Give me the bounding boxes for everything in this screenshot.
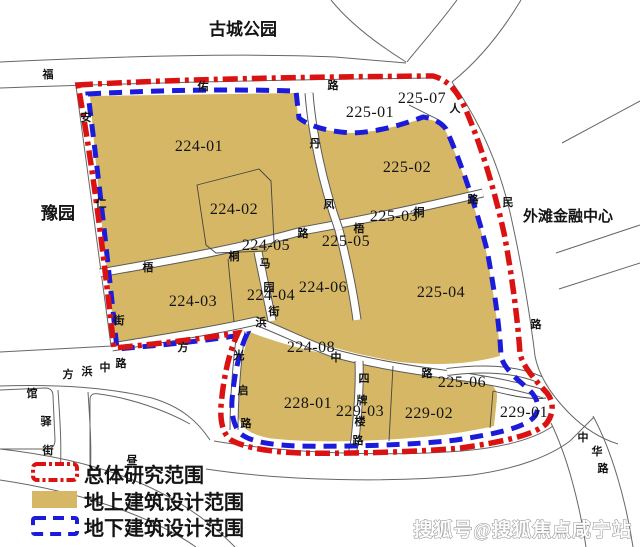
legend-swatch-above-ground — [32, 491, 77, 508]
street-label-方浜中路: 方 — [178, 340, 189, 354]
street-label-馆驿街: 驿 — [41, 415, 53, 428]
street-label-中华路: 华 — [592, 444, 603, 458]
parcel-label-224-01: 224-01 — [175, 138, 223, 155]
street-label-丹凤路: 丹 — [310, 137, 321, 150]
parcel-label-225-07: 225-07 — [398, 90, 446, 107]
legend-swatch-underground — [33, 518, 77, 534]
parcel-label-224-08: 224-08 — [287, 339, 335, 356]
street-label-馆驿街: 馆 — [27, 386, 38, 400]
street-label-中华路: 中 — [578, 430, 589, 444]
street-label-丹凤路: 凤 — [324, 198, 335, 211]
street-label-人民路: 路 — [531, 317, 543, 331]
street-label-梧桐路: 梧 — [354, 221, 365, 235]
street-label-光启路: 路 — [241, 416, 253, 430]
street-label-马园街: 园 — [264, 281, 275, 294]
parcel-label-229-01: 229-01 — [500, 404, 548, 421]
street-label-马园街: 马 — [260, 257, 271, 270]
place-label-古城公园: 古城公园 — [209, 19, 277, 39]
street-label-福佑路: 佑 — [197, 79, 209, 93]
legend-label-study-boundary: 总体研究范围 — [84, 463, 204, 487]
street-label-福佑路: 路 — [328, 78, 340, 92]
street-label-梧桐路: 路 — [298, 226, 310, 240]
street-label-光启路: 启 — [238, 383, 249, 397]
parcel-label-224-02: 224-02 — [210, 201, 258, 218]
street-label-福佑路: 福 — [42, 67, 54, 81]
street-label-光启路: 光 — [233, 348, 245, 362]
street-label-梧桐路: 桐 — [229, 249, 240, 263]
street-label-安仁街: 街 — [113, 313, 125, 327]
parcel-label-225-01: 225-01 — [346, 104, 394, 121]
parcel-label-225-05: 225-05 — [322, 233, 370, 250]
street-label-馆驿街: 街 — [42, 443, 54, 457]
street-label-中华路: 路 — [598, 461, 610, 475]
street-label-四牌楼路: 牌 — [357, 393, 368, 407]
place-label-外滩金融中心: 外滩金融中心 — [522, 207, 613, 225]
planning-map: 224-01224-02224-05224-03224-04224-06224-… — [0, 0, 640, 547]
place-label-豫园: 豫园 — [41, 203, 75, 223]
street-label-梧桐路: 路 — [468, 192, 480, 206]
street-label-梧桐路: 桐 — [414, 205, 425, 219]
parcel-label-224-05: 224-05 — [242, 237, 290, 254]
street-label-方浜中路: 路 — [422, 366, 434, 380]
street-label-方浜中路: 浜 — [256, 315, 267, 329]
street-label-四牌楼路: 路 — [353, 433, 365, 447]
parcel-label-224-06: 224-06 — [299, 279, 347, 296]
street-label-方浜中路: 浜 — [82, 364, 93, 378]
street-label-安仁街: 仁 — [96, 196, 107, 210]
street-label-人民路: 人 — [450, 101, 462, 115]
parcel-label-225-06: 225-06 — [438, 374, 486, 391]
street-label-梧桐路: 梧 — [143, 260, 154, 274]
street-label-方浜中路: 中 — [331, 350, 342, 364]
street-label-方浜中路: 路 — [116, 356, 128, 370]
parcel-label-228-01: 228-01 — [284, 395, 332, 412]
planning-map-page: 224-01224-02224-05224-03224-04224-06224-… — [0, 0, 640, 547]
parcel-label-224-03: 224-03 — [169, 293, 217, 310]
street-label-安仁街: 安 — [81, 110, 92, 124]
street-label-方浜中路: 中 — [100, 360, 111, 374]
legend-label-above-ground: 地上建筑设计范围 — [84, 490, 244, 514]
legend-swatch-study-boundary — [33, 464, 77, 480]
parcel-label-225-03: 225-03 — [370, 208, 418, 225]
street-label-四牌楼路: 楼 — [355, 414, 366, 428]
parcel-label-229-02: 229-02 — [405, 405, 453, 422]
legend-label-underground: 地下建筑设计范围 — [84, 516, 244, 540]
street-label-四牌楼路: 四 — [359, 372, 370, 385]
street-label-人民路: 民 — [503, 196, 514, 209]
parcel-label-225-02: 225-02 — [383, 159, 431, 176]
watermark: 搜狐号@搜狐焦点咸宁站 — [413, 518, 632, 541]
street-label-马园街: 街 — [268, 304, 280, 318]
parcel-label-225-04: 225-04 — [417, 284, 465, 301]
street-label-方浜中路: 方 — [63, 367, 74, 381]
